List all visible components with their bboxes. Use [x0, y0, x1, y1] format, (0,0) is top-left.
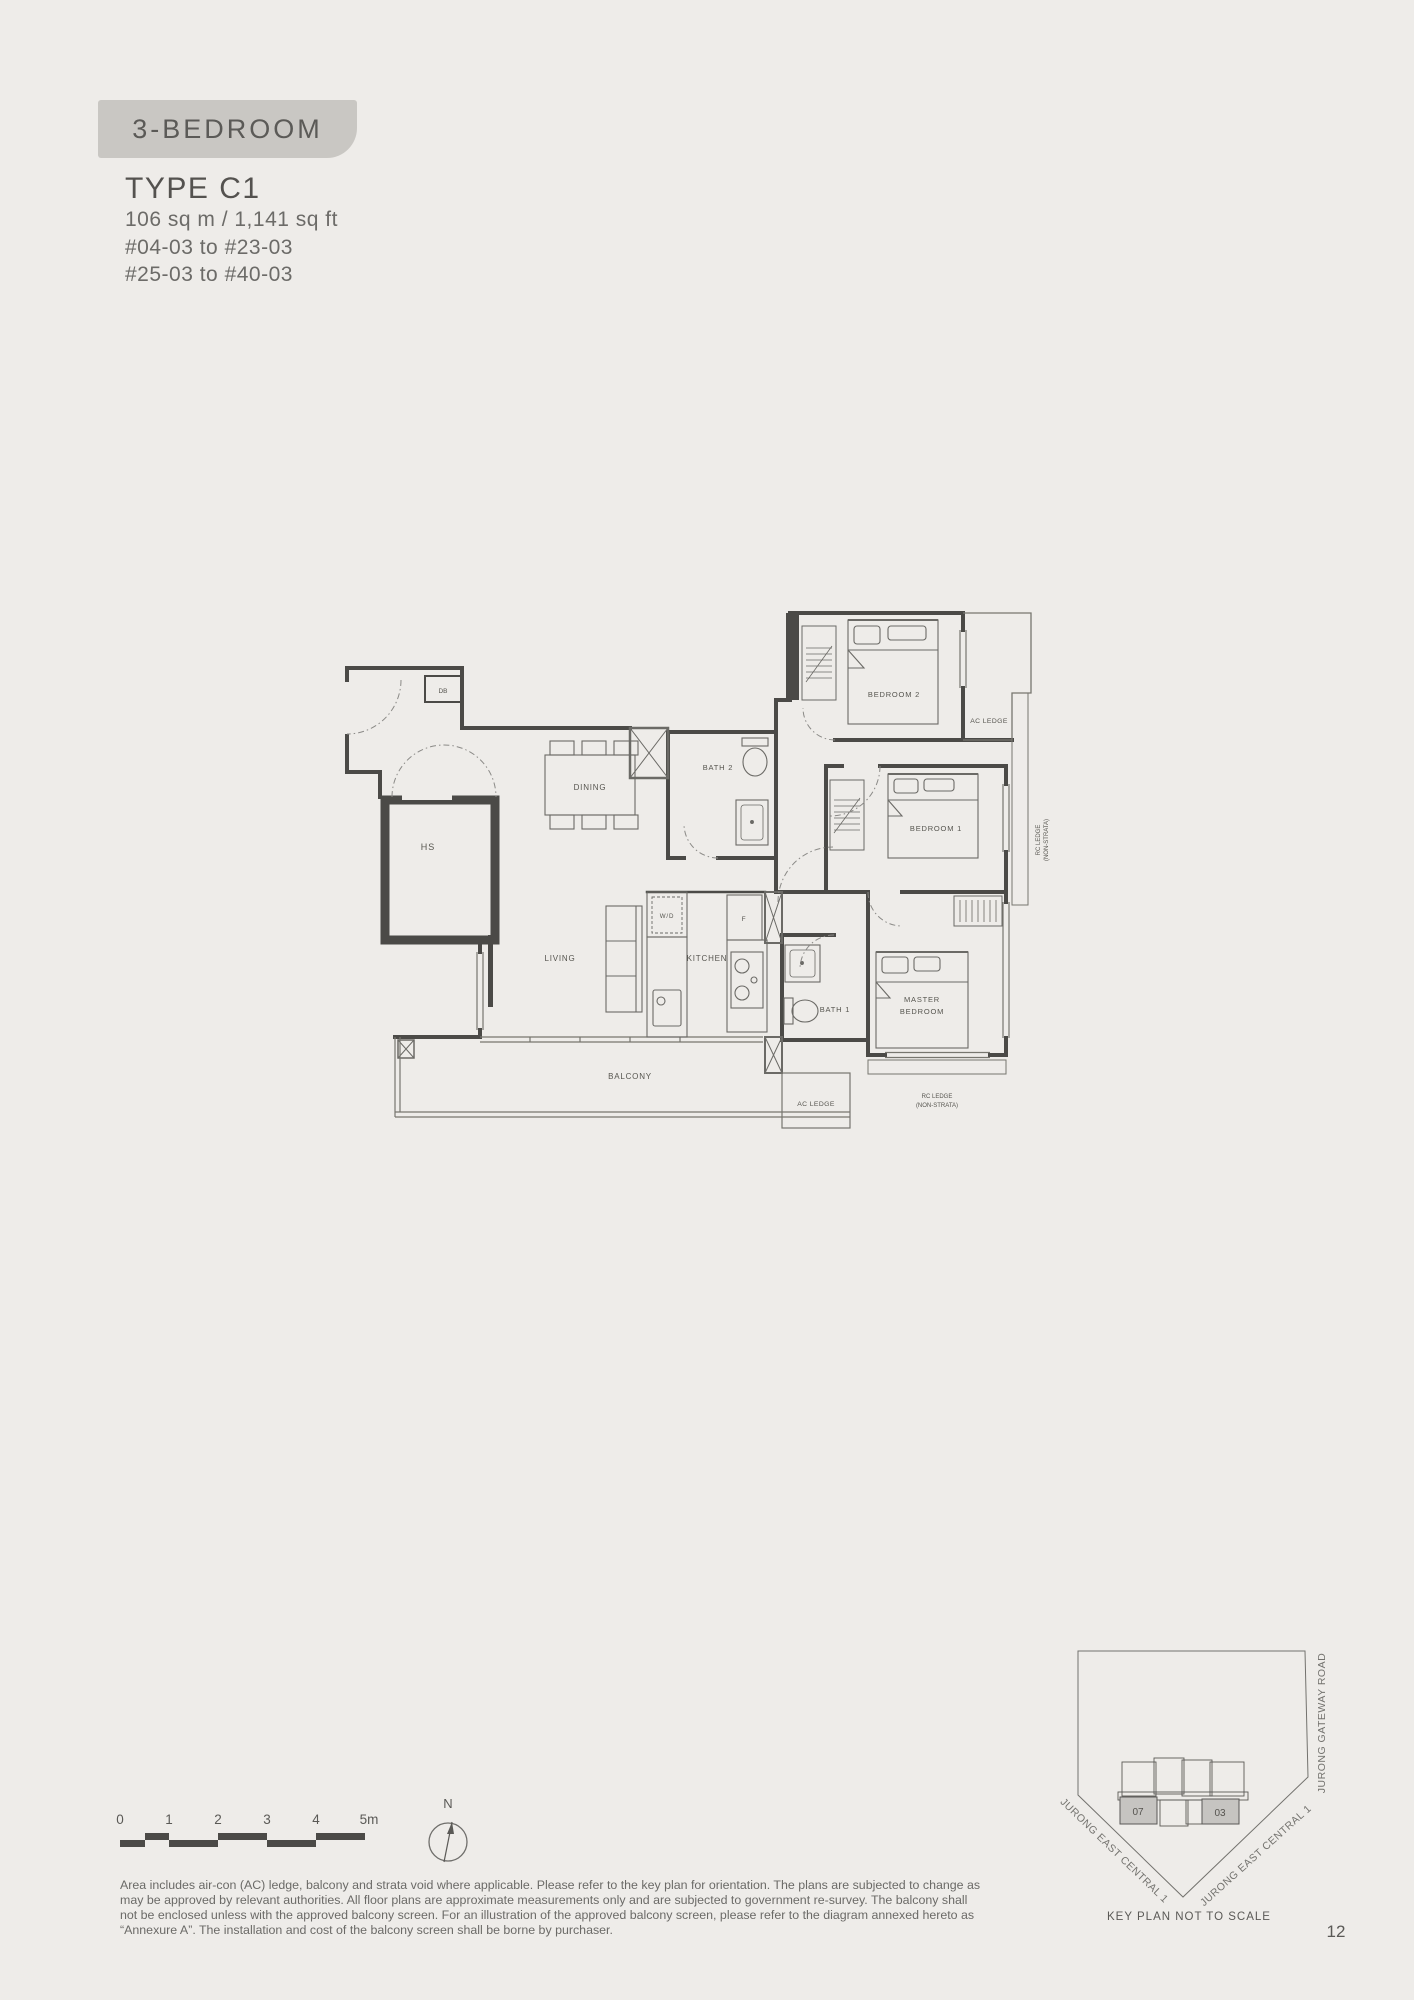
- badge-label: 3-BEDROOM: [132, 114, 323, 145]
- wd-label: W/D: [660, 913, 674, 920]
- key-plan-caption: KEY PLAN NOT TO SCALE: [1107, 1911, 1271, 1923]
- scale-tick-5: 5m: [360, 1812, 379, 1827]
- unit-area: 106 sq m / 1,141 sq ft: [125, 208, 338, 232]
- door-arcs: [347, 680, 902, 969]
- dining-label: DINING: [574, 783, 607, 792]
- scale-tick-2: 2: [214, 1812, 222, 1827]
- rc-ledge-bottom: RC LEDGE (NON-STRATA): [868, 1060, 1006, 1109]
- rc-ledge-right: RC LEDGE (NON-STRATA): [1012, 693, 1050, 905]
- unit-range-2: #25-03 to #40-03: [125, 263, 293, 287]
- disclaimer-line-4: “Annexure A”. The installation and cost …: [120, 1923, 613, 1937]
- ac-ledge-bottom-label: AC LEDGE: [797, 1101, 835, 1108]
- scale-tick-1: 1: [165, 1812, 173, 1827]
- scale-tick-4: 4: [312, 1812, 320, 1827]
- unit-range-1: #04-03 to #23-03: [125, 236, 293, 260]
- unit-07-label: 07: [1132, 1807, 1144, 1818]
- key-plan: 07 03 JURONG GATEWAY ROAD JURONG EAST CE…: [1050, 1620, 1360, 1940]
- balcony-label: BALCONY: [608, 1072, 652, 1081]
- page-title: TYPE C1: [125, 172, 261, 206]
- bedroom1-label: BEDROOM 1: [910, 824, 962, 833]
- disclaimer-line-3: not be enclosed unless with the approved…: [120, 1908, 974, 1922]
- household-shelter: HS: [385, 791, 495, 940]
- wardrobe-master: [954, 896, 1002, 926]
- highlighted-unit-03: 03: [1202, 1799, 1239, 1824]
- rc-ledge-bottom-label-1: RC LEDGE: [922, 1094, 953, 1100]
- master-label-2: BEDROOM: [900, 1007, 944, 1016]
- walls: [347, 613, 1012, 1055]
- wardrobe-bedroom1: [830, 780, 864, 850]
- unit-03-label: 03: [1214, 1808, 1226, 1819]
- bedroom2-label: BEDROOM 2: [868, 690, 920, 699]
- scale-tick-0: 0: [116, 1812, 124, 1827]
- bath1-label: BATH 1: [820, 1005, 851, 1014]
- tv-console: [488, 935, 493, 1007]
- north-compass: N: [418, 1794, 478, 1874]
- road-jurong-gateway: JURONG GATEWAY ROAD: [1316, 1653, 1328, 1793]
- db-closet: DB: [425, 676, 462, 702]
- bed-bedroom1: [888, 774, 978, 858]
- site-boundary: [1078, 1651, 1308, 1897]
- wardrobe-bedroom2: [802, 626, 836, 700]
- db-label: DB: [438, 688, 447, 695]
- ac-ledge-bottom: AC LEDGE: [782, 1073, 850, 1128]
- scale-tick-3: 3: [263, 1812, 271, 1827]
- bath2-fixtures: [736, 738, 768, 845]
- living-label: LIVING: [544, 954, 575, 963]
- ac-ledge-top: AC LEDGE: [963, 613, 1031, 740]
- disclaimer-line-1: Area includes air-con (AC) ledge, balcon…: [120, 1878, 980, 1892]
- ac-ledge-top-label: AC LEDGE: [970, 718, 1008, 725]
- bath2-label: BATH 2: [703, 763, 734, 772]
- fridge-label: F: [742, 916, 747, 923]
- sofa: [606, 906, 642, 1012]
- rc-ledge-bottom-label-2: (NON-STRATA): [916, 1103, 958, 1109]
- bed-bedroom2: [848, 620, 938, 724]
- highlighted-unit-07: 07: [1120, 1797, 1157, 1824]
- unit-type-badge: 3-BEDROOM: [98, 100, 357, 158]
- master-label-1: MASTER: [904, 995, 940, 1004]
- rc-ledge-right-label-1: RC LEDGE: [1036, 825, 1042, 856]
- kitchen-label: KITCHEN: [687, 954, 728, 963]
- floor-plan: HS DB AC LEDGE RC LED: [290, 600, 1070, 1150]
- wall-pillar: [786, 613, 799, 700]
- hs-label: HS: [421, 842, 436, 852]
- service-shafts: [398, 728, 782, 1073]
- windows: [477, 630, 1009, 1058]
- scale-bar-strip: [120, 1833, 365, 1847]
- disclaimer-line-2: may be approved by relevant authorities.…: [120, 1893, 967, 1907]
- rc-ledge-right-label-2: (NON-STRATA): [1044, 819, 1050, 861]
- page-number: 12: [1318, 1922, 1354, 1942]
- north-label: N: [443, 1796, 452, 1811]
